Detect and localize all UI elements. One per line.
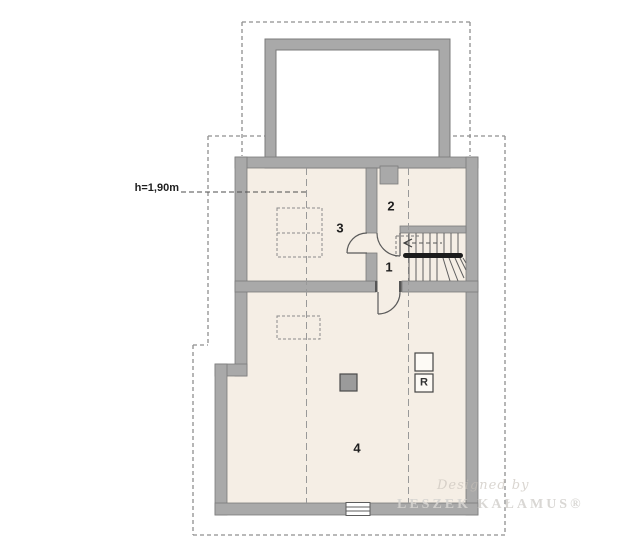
r-box-label: R <box>420 378 428 389</box>
void-room <box>265 39 450 168</box>
wall-divider-upper <box>366 168 377 233</box>
room-label-2: 2 <box>387 200 394 213</box>
room-label-1: 1 <box>385 261 392 274</box>
wall-mid-right <box>402 281 478 292</box>
wall-divider-lower <box>366 253 377 281</box>
watermark-designed-by: Designed by <box>437 478 529 493</box>
window-bottom <box>346 503 370 516</box>
wall-room2-stairs <box>400 226 466 233</box>
wall-top <box>235 157 478 168</box>
chimney-block <box>340 374 357 391</box>
room-label-4: 4 <box>353 442 360 455</box>
wall-mid-left <box>235 281 376 292</box>
floor-plan-drawing <box>0 0 638 556</box>
room-label-3: 3 <box>336 222 343 235</box>
height-annotation: h=1,90m <box>127 183 179 194</box>
floor-plan: h=1,90m 1 2 3 4 R Designed by LESZEK KAŁ… <box>0 0 638 556</box>
floor-area <box>215 157 478 515</box>
chimney-pier <box>380 166 398 184</box>
watermark-author: LESZEK KAŁAMUS® <box>397 497 584 513</box>
wall-left-lower <box>215 364 227 515</box>
stair-balustrade <box>403 253 463 258</box>
wall-left-upper <box>235 157 247 376</box>
wall-right <box>466 157 478 515</box>
